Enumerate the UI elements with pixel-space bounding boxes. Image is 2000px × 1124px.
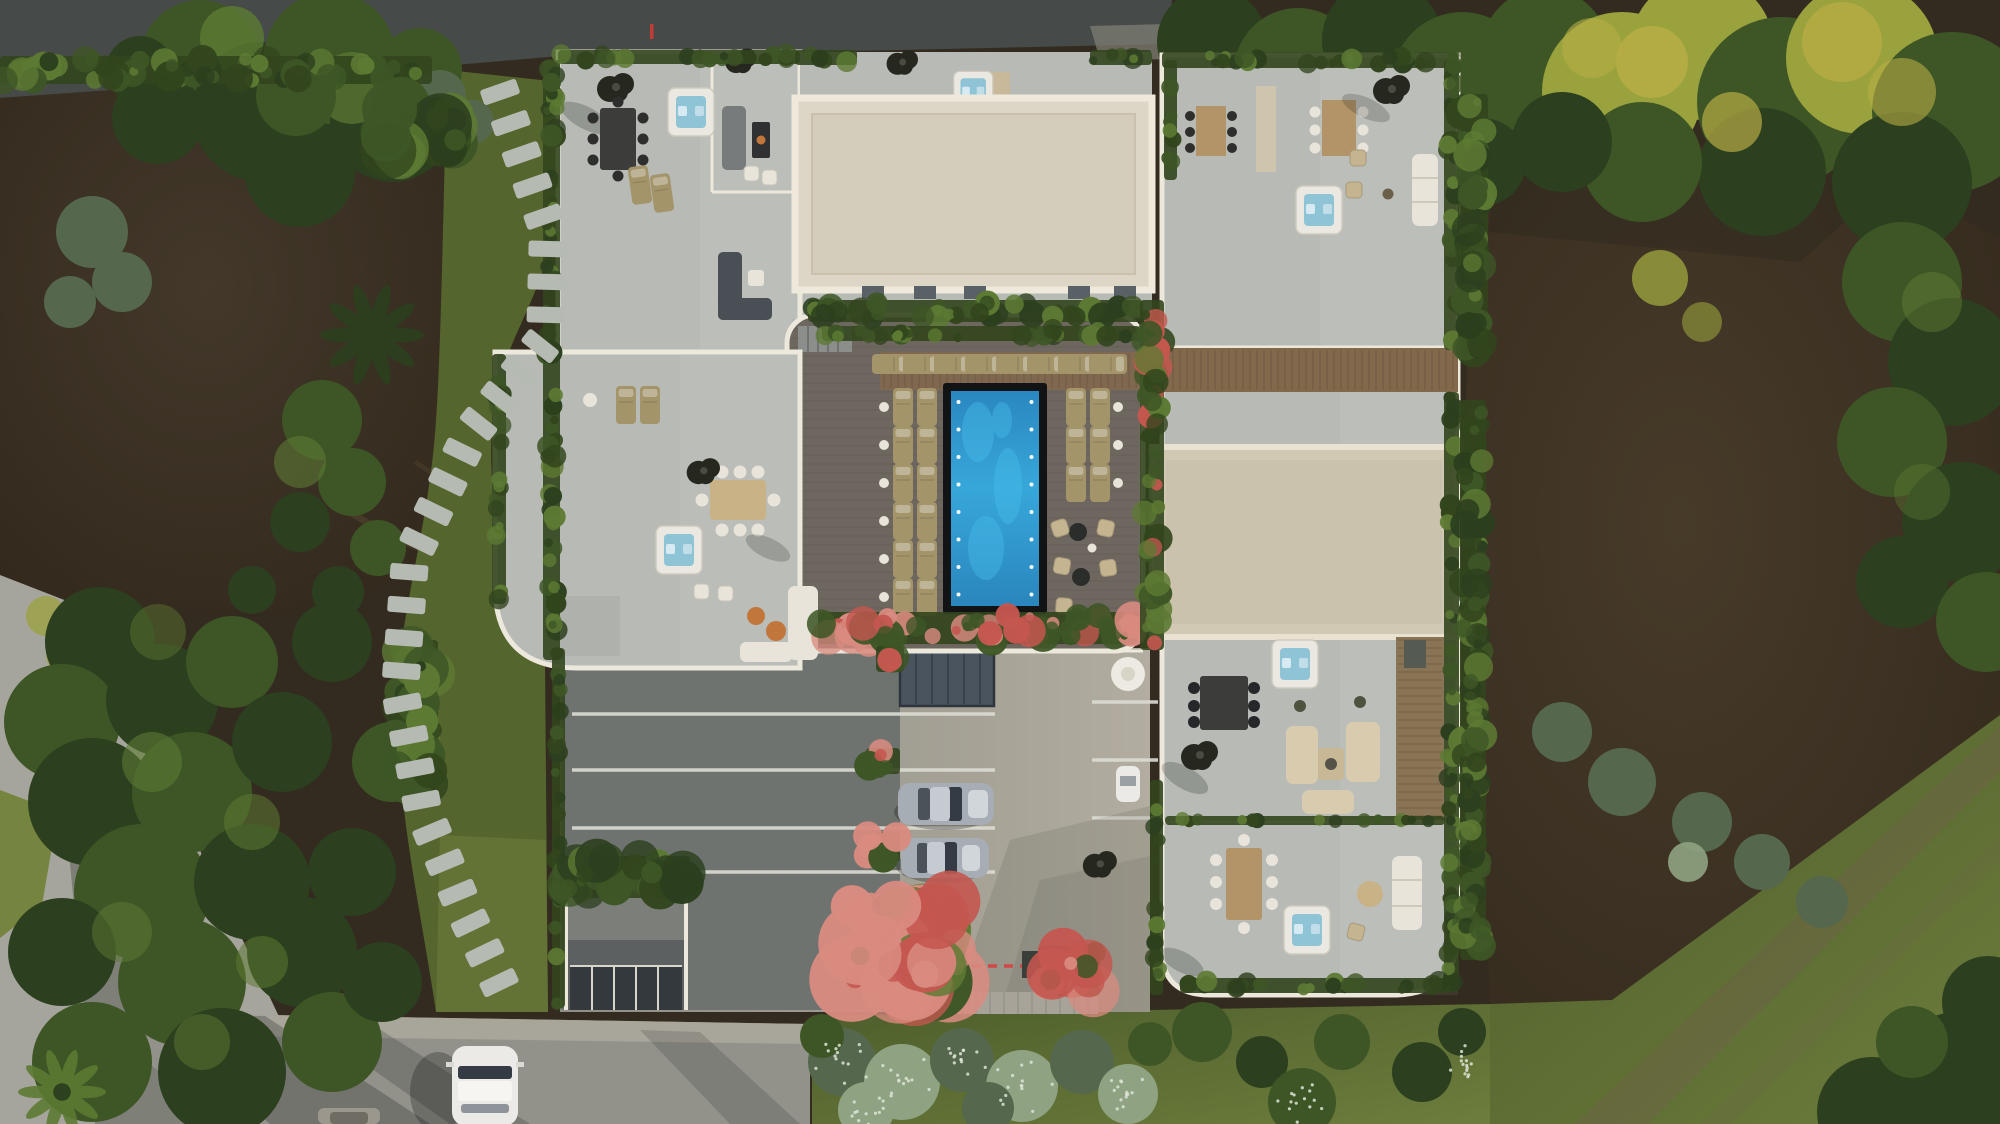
tree [1632,250,1688,306]
white-flower [1463,1072,1466,1075]
lounger-side-table [879,516,889,526]
white-flower [1051,1083,1054,1086]
white-flower [1289,1100,1292,1103]
dining-table-wood [1226,848,1262,920]
white-flower [1020,1084,1023,1087]
sun-lounger [1066,388,1086,426]
sun-lounger [1066,464,1086,502]
armchair-b1 [694,584,709,599]
tree [174,1014,230,1070]
white-flower [896,1074,899,1077]
white-flower [1020,1087,1023,1090]
white-flower [999,1099,1002,1102]
pool-light [1030,593,1034,597]
tree [1894,464,1950,520]
roof-inner [812,114,1135,274]
fire-pit-1 [1069,523,1087,541]
white-flower [1030,1061,1033,1064]
white-flower [1006,1086,1009,1089]
aerial-render: Aerial top-down 3D render — modern villa… [0,0,2000,1124]
armchair-white-2 [762,170,777,185]
white-flower [927,1088,930,1091]
white-flower [824,1043,827,1046]
white-flower [834,1057,837,1060]
white-flower [1125,1093,1128,1096]
white-flower [902,1082,905,1085]
tan-chair-lower [1346,922,1365,941]
stepping-stone [384,629,423,648]
tan-chair-2 [1346,182,1362,198]
white-flower [1460,1050,1463,1053]
terrace-top-right [1162,55,1458,348]
white-flower [1460,1059,1463,1062]
white-flower [1020,1064,1023,1067]
white-flower [889,1069,892,1072]
sun-lounger [1090,426,1110,464]
white-flower [1465,1059,1468,1062]
tree [1856,536,1948,628]
white-flower [907,1079,910,1082]
white-sofa-tr [1412,154,1438,226]
white-flower [1311,1083,1314,1086]
white-flower [1141,1078,1144,1081]
sun-lounger [893,426,913,464]
white-flower [922,1058,925,1061]
white-flower [1119,1079,1122,1082]
white-flower [1460,1055,1463,1058]
pool-light [1030,428,1034,432]
white-flower [878,1097,881,1100]
white-flower [1116,1107,1119,1110]
fire-flame [757,136,766,145]
white-flower [1004,1094,1007,1097]
stepping-stone [382,661,421,680]
white-flower [847,1062,850,1065]
white-flower [853,1100,856,1103]
pool-light [957,538,961,542]
stepping-stone [528,240,566,257]
white-flower [959,1052,962,1055]
white-flower [975,1050,978,1053]
tree [44,276,96,328]
pool-light [957,565,961,569]
tree [318,448,386,516]
white-flower [1119,1098,1122,1101]
white-flower [1290,1092,1293,1095]
white-flower [1276,1099,1279,1102]
dining-table-dark [600,108,636,170]
white-flower [850,1114,853,1117]
white-flower [1116,1085,1119,1088]
stepping-stone [527,273,565,290]
white-flower [1320,1107,1323,1110]
white-flower [838,1044,841,1047]
white-flower [1466,1066,1469,1069]
fire-pit-2 [1072,568,1090,586]
beige-sofa-3 [1302,790,1354,814]
pool-light [1030,455,1034,459]
pool-light [1030,510,1034,514]
lounger-side-table [1113,402,1123,412]
tree [92,252,152,312]
tree [236,936,288,988]
tree [1702,92,1762,152]
tree [1734,834,1790,890]
pool-light [1030,483,1034,487]
lounger-b1 [616,386,636,424]
tree [232,692,332,792]
roof-cream-top [795,98,1152,299]
white-flower [865,1112,868,1115]
plant-pot-2 [1354,696,1366,708]
white-flower [1463,1044,1466,1047]
sun-lounger [893,502,913,540]
pool-light [957,428,961,432]
tree [270,492,330,552]
white-flower [1303,1097,1306,1100]
white-flower [833,1054,836,1057]
tree [186,616,278,708]
white-flower [905,1077,908,1080]
terrace-b-step [560,596,620,656]
stepping-stone [387,596,426,615]
sun-lounger [917,464,937,502]
pool-light [957,510,961,514]
tree [1876,1006,1948,1078]
sun-lounger [917,426,937,464]
stepping-stone [390,563,429,582]
white-flower [827,1049,830,1052]
white-flower [882,1099,885,1102]
white-flower [1021,1079,1024,1082]
lounger-b2 [640,386,660,424]
pool-light [1030,400,1034,404]
dining-table-mid [1200,676,1248,730]
stone-counter [1256,86,1276,172]
sun-lounger [893,540,913,578]
gray-sofa [722,106,746,170]
lounger-side-table [1113,440,1123,450]
tree [122,732,182,792]
sun-lounger [1066,426,1086,464]
dark-car-partial [318,1108,380,1124]
white-sofa-lower [1392,856,1422,930]
hot-tub-top-right [1296,186,1342,234]
white-flower [962,1049,965,1052]
white-flower [865,1075,868,1078]
white-flower [1295,1102,1298,1105]
white-flower [897,1079,900,1082]
white-flower [1313,1099,1316,1102]
tree [1128,1022,1172,1066]
sun-lounger [893,464,913,502]
white-flower [1122,1105,1125,1108]
white-flower [1011,1074,1014,1077]
white-flower [874,1112,877,1115]
tree [1682,302,1722,342]
tree [1616,26,1688,98]
white-flower [1031,1110,1034,1113]
tree [1796,876,1848,928]
beige-sofa-2 [1346,722,1380,782]
tan-chair-1 [1350,150,1366,166]
side-table [1383,189,1394,200]
flower-bed [876,642,909,672]
pool-light [957,400,961,404]
armchair-b2 [718,586,733,601]
white-flower [1470,1062,1473,1065]
tree [292,602,372,682]
aerial-render-canvas: Aerial top-down 3D render — modern villa… [0,0,2000,1124]
white-flower [953,1054,956,1057]
dining-table-tan [710,480,766,520]
white-flower [966,1073,969,1076]
orange-table-2 [766,621,786,641]
pergola-band [1162,348,1458,392]
pool-light [957,483,961,487]
flower-bed [809,871,989,1026]
beige-sofa-1 [1286,726,1318,784]
white-flower [947,1047,950,1050]
white-flower [1308,1089,1311,1092]
tree [1172,1002,1232,1062]
dining-table-brown-1 [1196,106,1226,156]
tree [1588,748,1656,816]
white-flower [855,1110,858,1113]
sun-lounger [917,540,937,578]
tree [1438,1008,1486,1056]
pool-light [1030,565,1034,569]
lounger-side-table [879,478,889,488]
white-flower [834,1047,837,1050]
white-flower [859,1050,862,1053]
white-flower [1110,1079,1113,1082]
tree [308,828,396,916]
tree [1672,792,1732,852]
white-flower [878,1111,881,1114]
white-flower [814,1067,817,1070]
armchair-white-1 [744,166,759,181]
white-flower [1113,1089,1116,1092]
tree [1562,18,1622,78]
tree [1668,842,1708,882]
red-flag [650,24,654,39]
tree [1392,1042,1452,1102]
side-table-b [583,393,597,407]
white-flower [910,1078,913,1081]
tree [1512,92,1612,192]
white-flower [889,1094,892,1097]
white-flower [959,1058,962,1061]
hot-tub-lower [1284,906,1330,954]
white-flower [949,1052,952,1055]
orange-table-1 [747,607,765,625]
tree [1314,1014,1370,1070]
lounger-side-table [879,592,889,602]
white-flower [1130,1091,1133,1094]
white-flower [1288,1107,1291,1110]
mid-steps [1404,640,1426,668]
white-flower [1296,1121,1299,1124]
white-cart [1116,766,1140,802]
white-flower [882,1107,885,1110]
white-flower [996,1068,999,1071]
white-flower [881,1064,884,1067]
tree [1868,58,1936,126]
white-flower [1001,1103,1004,1106]
garage-glass-canopy [570,966,682,1010]
white-car-driving [410,1046,524,1124]
white-flower [858,1043,861,1046]
terrace-top-left [556,52,800,352]
white-flower [1449,1069,1452,1072]
pool-light [957,593,961,597]
tree [342,942,422,1022]
lounger-side-table [1113,478,1123,488]
sun-lounger [893,578,913,616]
hot-tub-terrace-b [656,526,702,574]
lounger-side-table [879,554,889,564]
lounger-side-table [879,402,889,412]
sun-lounger [917,388,937,426]
white-flower [984,1066,987,1069]
parked-car-1 [894,783,994,830]
white-flower [857,1119,860,1122]
white-flower [1308,1105,1311,1108]
tree [224,794,280,850]
sun-lounger [917,502,937,540]
tree [1532,702,1592,762]
white-flower [890,1091,893,1094]
sun-lounger [893,388,913,426]
round-table-lower [1357,881,1383,907]
white-flower [1466,1075,1469,1078]
pool-light [1030,538,1034,542]
hot-tub-mid [1272,640,1318,688]
white-dome-top [1121,667,1135,681]
white-flower [1461,1063,1464,1066]
white-flower [843,1082,846,1085]
tree [92,902,152,962]
stepping-stone [526,306,564,323]
pergola-lounger [1089,354,1127,374]
tree [1902,272,1962,332]
white-flower [1301,1086,1304,1089]
tree [130,604,186,660]
tree [274,436,326,488]
roof-beige-inner [1166,460,1442,624]
sun-lounger [917,578,937,616]
plant-pot-1 [1294,700,1306,712]
white-flower [841,1061,844,1064]
tree [228,566,276,614]
tree [1802,2,1882,82]
sun-lounger [1090,464,1110,502]
pool-light [957,455,961,459]
sun-lounger [1090,388,1110,426]
lounger-side-table [879,440,889,450]
white-flower [953,1061,956,1064]
hot-tub-terrace-a [668,88,714,136]
white-flower [836,1051,839,1054]
